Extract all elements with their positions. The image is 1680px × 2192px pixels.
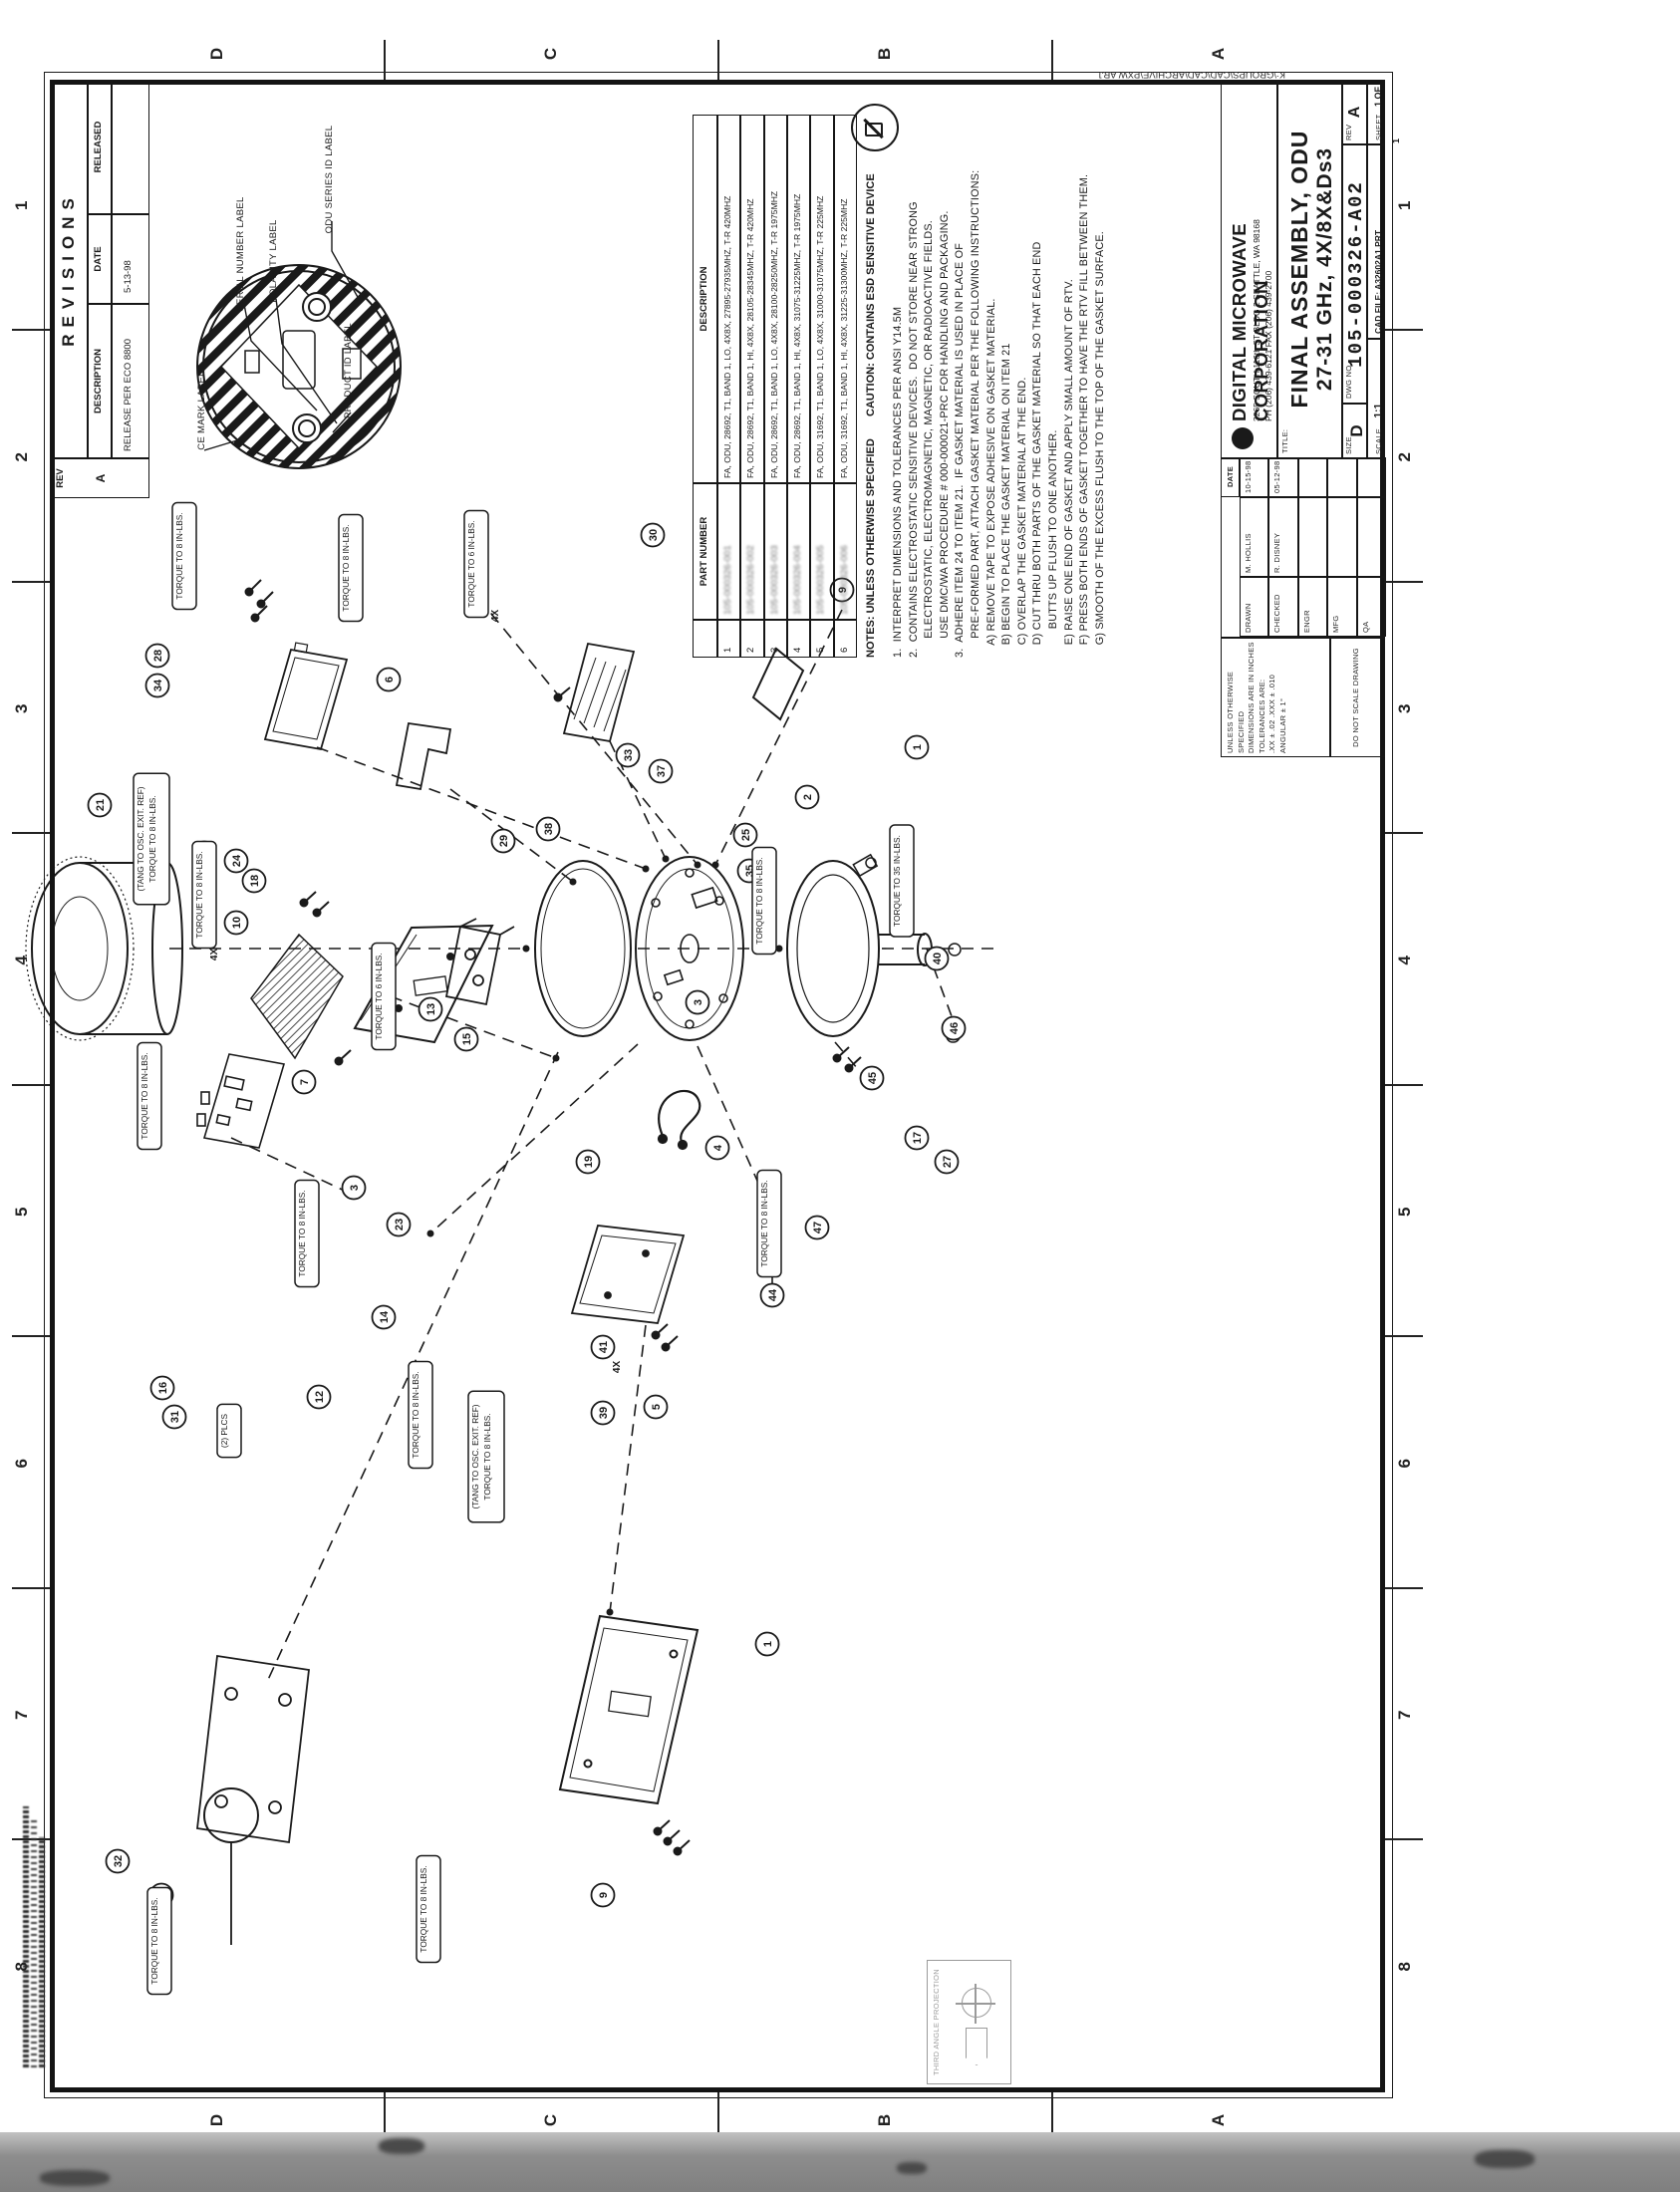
rev-date-cell: 5-13-98 — [112, 214, 149, 304]
zone-tick — [12, 330, 50, 332]
parts-part-number: 105-000326-006 — [834, 483, 857, 620]
company-cell: DIGITAL MICROWAVE CORPORATION 3265 SOUTH… — [1221, 80, 1277, 458]
zone-row-A-left: A — [1209, 2114, 1229, 2126]
zone-tick — [1385, 1587, 1423, 1589]
approval-date — [1298, 457, 1327, 497]
parts-part-number: 105-000326-001 — [717, 483, 740, 620]
zone-col-1-top: 1 — [12, 201, 32, 210]
zone-tick — [1051, 2092, 1053, 2132]
approval-date: 10-15-98 — [1240, 457, 1268, 497]
parts-part-number: 105-000326-004 — [787, 483, 810, 620]
rev-date-header-cell: DATE — [88, 214, 112, 304]
note-line: ELECTROSTATIC, ELECTROMAGNETIC, MAGNETIC… — [922, 170, 938, 658]
do-not-scale-cell: DO NOT SCALE DRAWING — [1330, 638, 1385, 757]
approvals-block: DATE DRAWNM. HOLLIS10-15-98CHECKEDR. DIS… — [1221, 458, 1385, 638]
tolerance-line: .XX ± .02 .XXX ± .010 — [1267, 642, 1278, 753]
rev-col-header: REV — [55, 459, 66, 497]
size-cell: SIZE D — [1342, 404, 1367, 458]
rev-status-header-cell: RELEASED — [88, 80, 112, 214]
note-line: G) SMOOTH OF THE EXCESS FLUSH TO THE TOP… — [1093, 170, 1109, 658]
zone-tick — [1385, 1336, 1423, 1338]
parts-header-item — [693, 620, 717, 658]
zone-tick — [12, 581, 50, 583]
parts-item: 1 — [717, 620, 740, 658]
parts-part-number: 105-000326-002 — [740, 483, 763, 620]
tolerance-line: UNLESS OTHERWISE SPECIFIED — [1226, 642, 1247, 753]
zone-col-3-top: 3 — [12, 704, 32, 713]
rev-desc-header: DESCRIPTION — [93, 305, 104, 457]
approval-name — [1298, 497, 1327, 577]
approval-label: DRAWN — [1240, 577, 1268, 637]
drawing-title-line1: FINAL ASSEMBLY, ODU — [1286, 81, 1313, 457]
cad-archive-path: K:\GROUPS\CAD\CAD\ARCHIVE\PXW.ARJ — [1066, 69, 1285, 80]
scale-cell: SCALE 1:1 — [1367, 339, 1385, 458]
parts-description: FA, ODU, 28692, T1, BAND 1, HI, 4X8X, 28… — [740, 115, 763, 483]
zone-tick — [717, 40, 719, 80]
parts-description: FA, ODU, 31692, T1, BAND 1, LO, 4X8X, 31… — [810, 115, 833, 483]
approval-label: MFG — [1327, 577, 1356, 637]
esd-caution: CAUTION: CONTAINS ESD SENSITIVE DEVICE — [865, 173, 877, 416]
parts-description: FA, ODU, 28692, T1, BAND 1, LO, 4X8X, 27… — [717, 115, 740, 483]
zone-tick — [384, 2092, 386, 2132]
third-angle-projection-block: THIRD ANGLE PROJECTION — [927, 1960, 1011, 2084]
notes-header: NOTES: UNLESS OTHERWISE SPECIFIED — [865, 438, 877, 658]
rev-description: RELEASE PER ECO 8800 — [123, 305, 134, 451]
tolerance-line: ANGULAR ± 1° — [1278, 642, 1289, 753]
zone-col-4-bottom: 4 — [1395, 956, 1415, 964]
zone-tick — [12, 1336, 50, 1338]
zone-tick — [1051, 40, 1053, 80]
zone-col-1-bottom: 1 — [1395, 201, 1415, 210]
cad-file-cell: CAD FILE: A32602A1.PRT — [1367, 144, 1385, 339]
rev-date: 5-13-98 — [123, 215, 134, 293]
approvals-date-header-cell: DATE — [1222, 457, 1240, 497]
approval-label: QA — [1357, 577, 1386, 637]
company-address: 3265 SOUTH 116th ST BLDG 2 SEATTLE, WA 9… — [1252, 219, 1261, 421]
scan-smudge — [1475, 2150, 1535, 2168]
scale-value: 1:1 — [1373, 404, 1384, 417]
scan-band — [0, 2132, 1680, 2192]
parts-table: PART NUMBER DESCRIPTION 1105-000326-001F… — [693, 115, 857, 658]
zone-col-7-top: 7 — [12, 1711, 32, 1720]
revisions-title-cell: REVISIONS — [50, 80, 88, 458]
zone-col-6-bottom: 6 — [1395, 1459, 1415, 1468]
rev-status-cell — [112, 80, 149, 214]
note-line: F) PRESS BOTH ENDS OF GASKET TOGETHER TO… — [1077, 170, 1093, 658]
zone-col-5-bottom: 5 — [1395, 1208, 1415, 1217]
zone-row-D-left: D — [207, 2114, 227, 2126]
note-line: 2. CONTAINS ELECTROSTATIC SENSITIVE DEVI… — [907, 170, 923, 658]
title-block: UNLESS OTHERWISE SPECIFIEDDIMENSIONS ARE… — [1221, 80, 1385, 757]
approval-label: ENGR — [1298, 577, 1327, 637]
sheet-cell: SHEET 1 OF 1 — [1367, 80, 1385, 144]
rev-value: A — [94, 459, 108, 497]
esd-symbol-icon — [851, 104, 899, 151]
approval-date: 05-12-98 — [1268, 457, 1297, 497]
zone-tick — [384, 40, 386, 80]
zone-col-7-bottom: 7 — [1395, 1711, 1415, 1720]
note-line: A) REMOVE TAPE TO EXPOSE ADHESIVE ON GAS… — [984, 170, 1000, 658]
note-line: E) RAISE ONE END OF GASKET AND APPLY SMA… — [1062, 170, 1078, 658]
drawing-scan-page: SERIAL NUMBER LABELPOLARITY LABELODU SER… — [0, 0, 1680, 2192]
zone-row-C-right: C — [541, 48, 561, 60]
zone-row-B-left: B — [875, 2114, 895, 2126]
zone-tick — [1385, 330, 1423, 332]
zone-tick — [717, 2092, 719, 2132]
title-label: TITLE: — [1280, 429, 1289, 453]
zone-row-D-right: D — [207, 48, 227, 60]
parts-item: 4 — [787, 620, 810, 658]
approval-date — [1357, 457, 1386, 497]
notes-block: NOTES: UNLESS OTHERWISE SPECIFIED CAUTIO… — [865, 85, 1214, 658]
zone-row-B-right: B — [875, 48, 895, 60]
zone-col-2-top: 2 — [12, 452, 32, 461]
approval-name: M. HOLLIS — [1240, 497, 1268, 577]
note-line: BUTTS UP FLUSH TO ONE ANOTHER. — [1046, 170, 1062, 658]
rev-date-header: DATE — [93, 215, 104, 303]
zone-tick — [1385, 581, 1423, 583]
revisions-title: REVISIONS — [59, 81, 79, 457]
parts-item: 5 — [810, 620, 833, 658]
third-angle-text: THIRD ANGLE PROJECTION — [932, 1961, 941, 2083]
parts-item: 2 — [740, 620, 763, 658]
parts-description: FA, ODU, 31692, T1, BAND 1, HI, 4X8X, 31… — [834, 115, 857, 483]
approval-label: CHECKED — [1268, 577, 1297, 637]
parts-part-number: 105-000326-003 — [764, 483, 787, 620]
rev-desc-header-cell: DESCRIPTION — [88, 304, 112, 458]
rev-desc-cell: RELEASE PER ECO 8800 — [112, 304, 149, 458]
note-line: PRE-FORMED PART, ATTACH GASKET MATERIAL … — [969, 170, 984, 658]
scan-smudge — [897, 2162, 927, 2174]
zone-row-A-right: A — [1209, 48, 1229, 60]
note-line: C) OVERLAP THE GASKET MATERIAL AT THE EN… — [1015, 170, 1031, 658]
tolerance-line: TOLERANCES ARE: — [1258, 642, 1268, 753]
cad-file: CAD FILE: A32602A1.PRT — [1373, 230, 1383, 334]
zone-tick — [12, 833, 50, 835]
zone-col-6-top: 6 — [12, 1459, 32, 1468]
parts-item: 6 — [834, 620, 857, 658]
scan-smudge — [40, 2170, 110, 2186]
note-line: USE DMC/WA PROCEDURE # 000-000021-PRC FO… — [938, 170, 954, 658]
rev-col: REV A — [50, 458, 149, 498]
marginal-fine-print — [22, 1806, 48, 2067]
parts-item: 3 — [764, 620, 787, 658]
projection-symbol-icon — [958, 1976, 997, 2065]
parts-description: FA, ODU, 28692, T1, BAND 1, HI, 4X8X, 31… — [787, 115, 810, 483]
scan-smudge — [379, 2138, 424, 2154]
drawing-sheet: 8877665544332211DDCCBBAA K:\GROUPS\CAD\C… — [0, 0, 1680, 2192]
drawing-title-line2: 27-31 GHz, 4X/8X&Ds3 — [1313, 81, 1337, 457]
tolerance-line: DIMENSIONS ARE IN INCHES — [1247, 642, 1258, 753]
zone-col-8-bottom: 8 — [1395, 1962, 1415, 1971]
zone-tick — [1385, 1839, 1423, 1841]
company-logo-icon — [1232, 427, 1254, 449]
approval-name — [1357, 497, 1386, 577]
note-line: 3. ADHERE ITEM 24 TO ITEM 21. IF GASKET … — [953, 170, 969, 658]
title-cell: TITLE: FINAL ASSEMBLY, ODU 27-31 GHz, 4X… — [1277, 80, 1342, 458]
do-not-scale: DO NOT SCALE DRAWING — [1351, 639, 1360, 756]
rev-cell: REV A — [1342, 80, 1367, 144]
tolerance-block: UNLESS OTHERWISE SPECIFIEDDIMENSIONS ARE… — [1221, 638, 1330, 757]
company-phone: PH (206) 439-6121 FAX (206) 439-2700 — [1263, 271, 1273, 421]
zone-tick — [12, 1587, 50, 1589]
zone-col-4-top: 4 — [12, 956, 32, 964]
dwg-no-cell: DWG NO. 105-000326-A02 — [1342, 144, 1367, 404]
approval-date — [1327, 457, 1356, 497]
parts-header-desc: DESCRIPTION — [693, 115, 717, 483]
zone-row-C-left: C — [541, 2114, 561, 2126]
parts-description: FA, ODU, 28692, T1, BAND 1, LO, 4X8X, 28… — [764, 115, 787, 483]
zone-col-2-bottom: 2 — [1395, 452, 1415, 461]
approval-name — [1327, 497, 1356, 577]
note-line: 1. INTERPRET DIMENSIONS AND TOLERANCES P… — [891, 170, 907, 658]
zone-col-3-bottom: 3 — [1395, 704, 1415, 713]
revisions-block: REVISIONS REV A DESCRIPTION DATE RELEASE… — [50, 80, 149, 498]
rev-status-header: RELEASED — [93, 81, 104, 213]
zone-tick — [12, 1084, 50, 1086]
note-line: D) CUT THRU BOTH PARTS OF THE GASKET MAT… — [1030, 170, 1046, 658]
approval-name: R. DISNEY — [1268, 497, 1297, 577]
zone-tick — [1385, 833, 1423, 835]
parts-header-pn: PART NUMBER — [693, 483, 717, 620]
parts-part-number: 105-000326-005 — [810, 483, 833, 620]
zone-col-5-top: 5 — [12, 1208, 32, 1217]
note-line: B) BEGIN TO PLACE THE GASKET MATERIAL ON… — [999, 170, 1015, 658]
zone-tick — [1385, 1084, 1423, 1086]
